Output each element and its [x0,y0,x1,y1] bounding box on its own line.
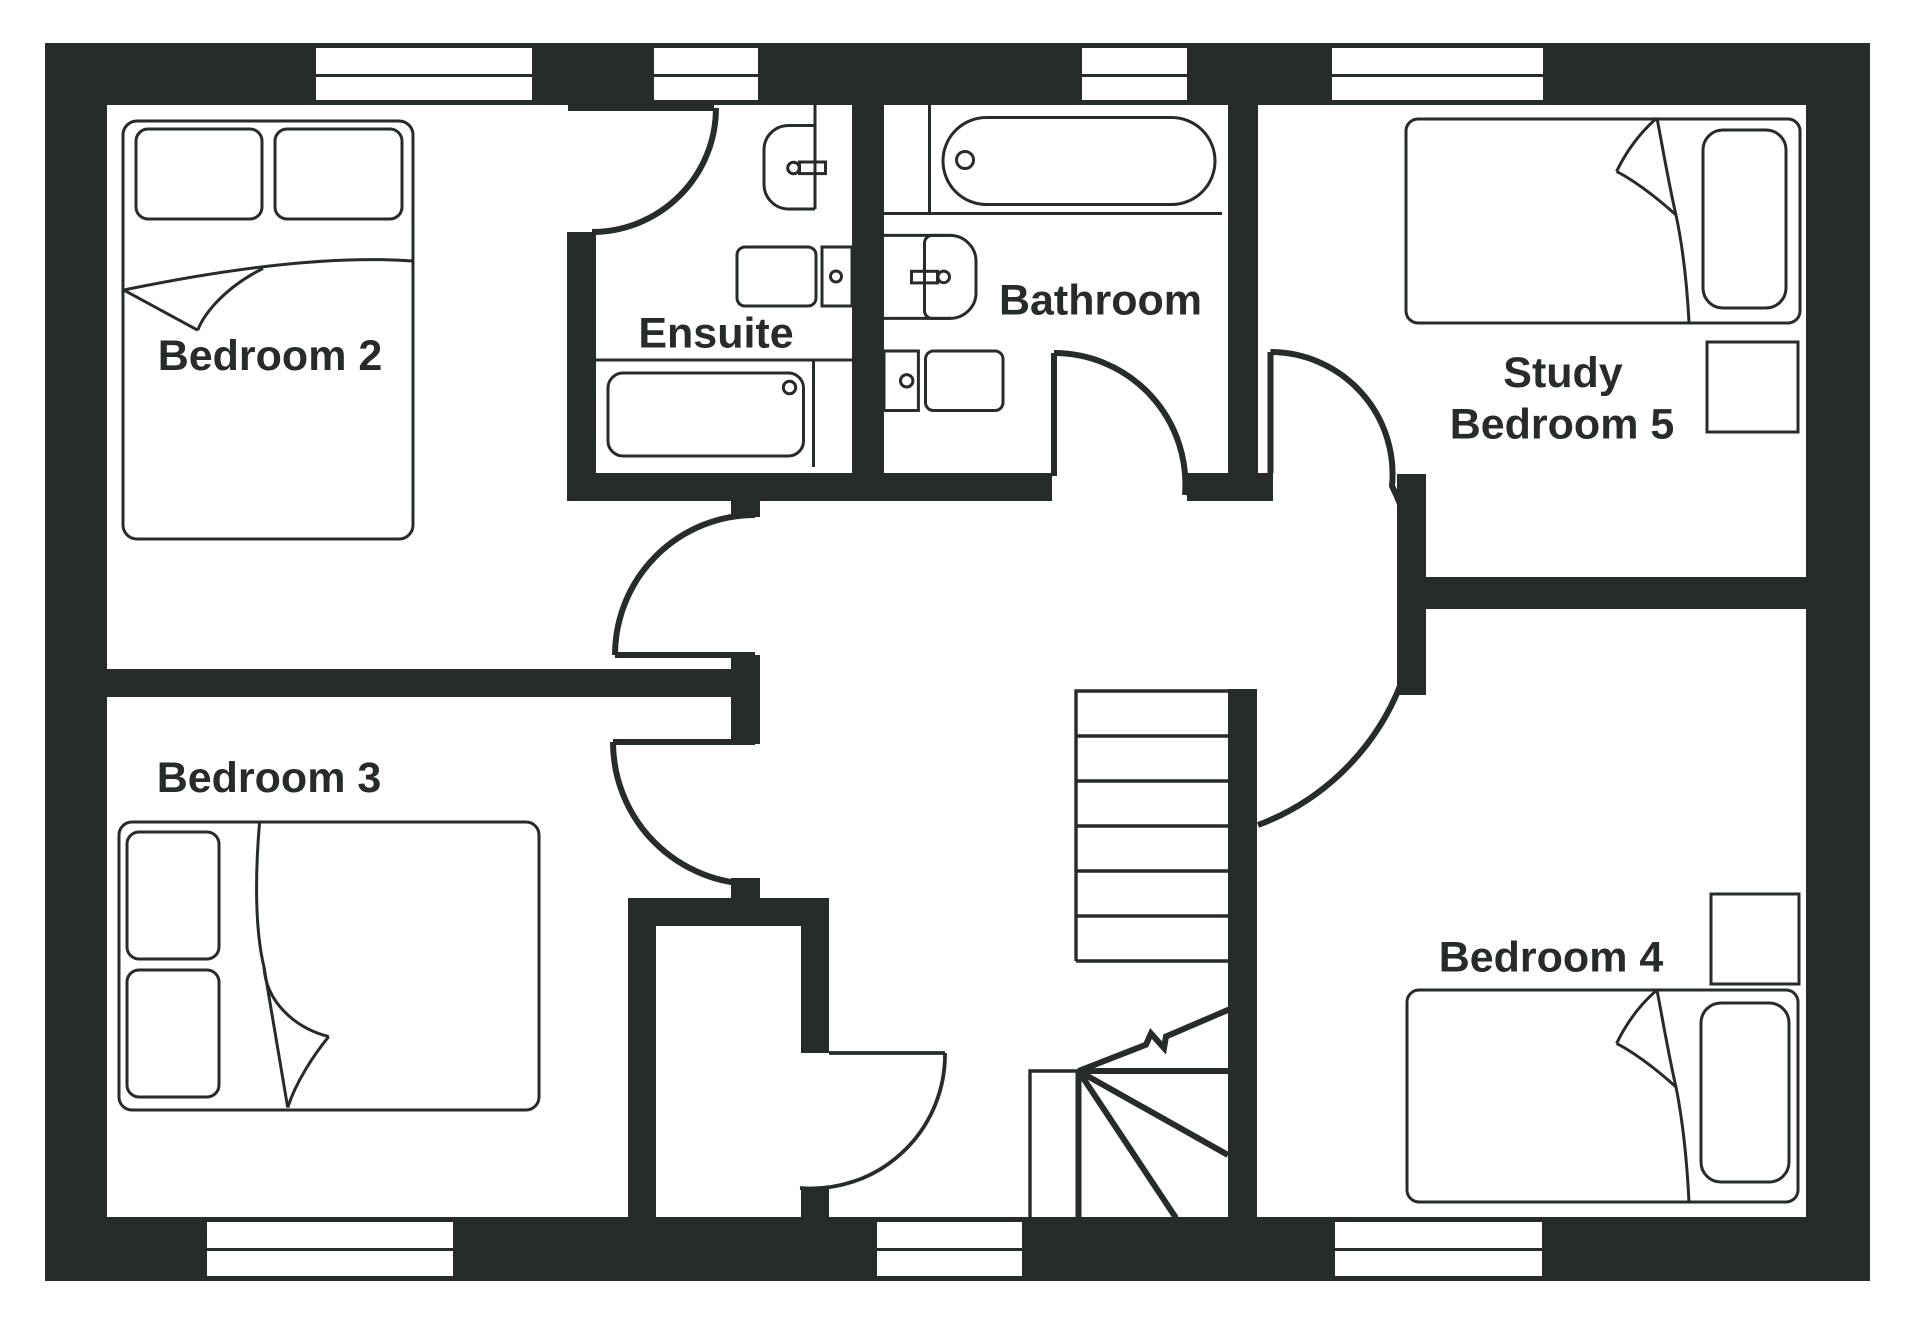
svg-text:Study: Study [1503,349,1623,397]
svg-text:Bedroom 2: Bedroom 2 [158,332,383,380]
svg-text:Bedroom 3: Bedroom 3 [157,754,382,802]
svg-text:Bedroom 4: Bedroom 4 [1439,934,1664,982]
svg-text:Bedroom 5: Bedroom 5 [1450,400,1675,448]
svg-text:Ensuite: Ensuite [638,310,793,358]
svg-text:Bathroom: Bathroom [999,277,1202,325]
